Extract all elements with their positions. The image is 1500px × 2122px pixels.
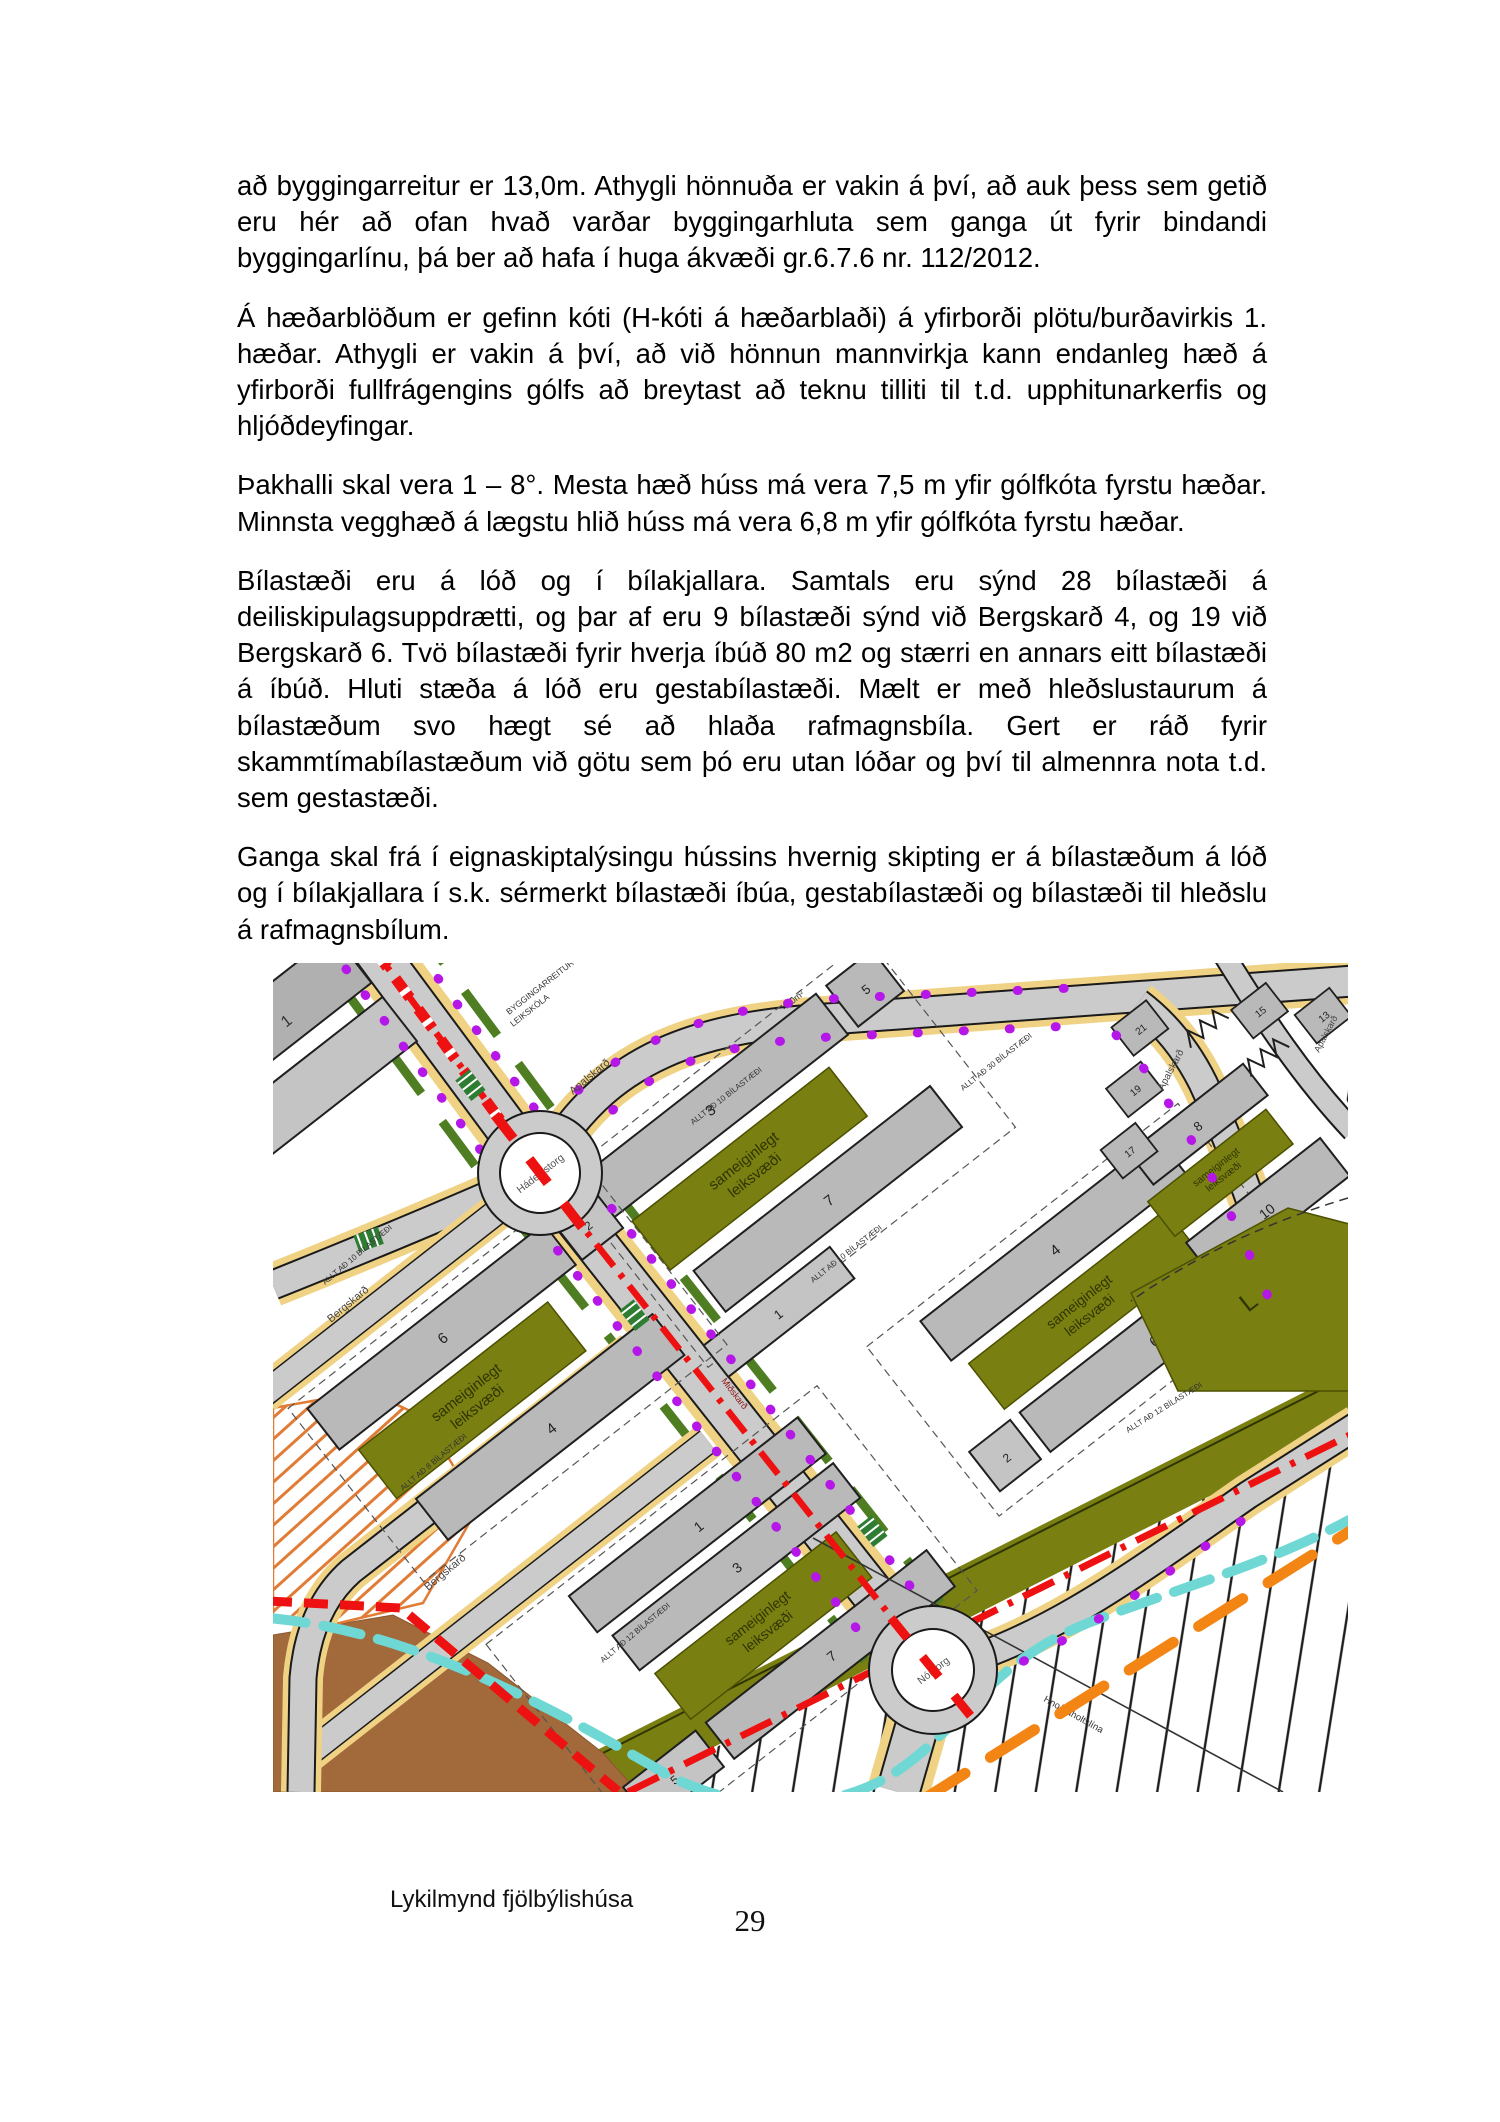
document-page: að byggingarreitur er 13,0m. Athygli hön… xyxy=(0,0,1500,2122)
paragraph-building-line: að byggingarreitur er 13,0m. Athygli hön… xyxy=(237,168,1267,277)
paragraph-parking: Bílastæði eru á lóð og í bílakjallara. S… xyxy=(237,563,1267,816)
paragraph-ownership: Ganga skal frá í eignaskiptalýsingu húss… xyxy=(237,839,1267,948)
roundabout-nontorg: Nóntorg xyxy=(869,1606,997,1734)
paragraph-height-codes: Á hæðarblöðum er gefinn kóti (H-kóti á h… xyxy=(237,300,1267,445)
paragraph-roof-slope: Þakhalli skal vera 1 – 8°. Mesta hæð hús… xyxy=(237,467,1267,539)
site-plan-svg: 1 BYGGINGARREITUR LEIKSKÓLA 3 5 480m² sa… xyxy=(273,963,1348,1792)
body-text: að byggingarreitur er 13,0m. Athygli hön… xyxy=(237,168,1267,971)
roundabout-hadegistorg: Hádegistorg xyxy=(478,1111,602,1235)
site-plan-map: 1 BYGGINGARREITUR LEIKSKÓLA 3 5 480m² sa… xyxy=(273,963,1348,1792)
page-number: 29 xyxy=(0,1903,1500,1939)
